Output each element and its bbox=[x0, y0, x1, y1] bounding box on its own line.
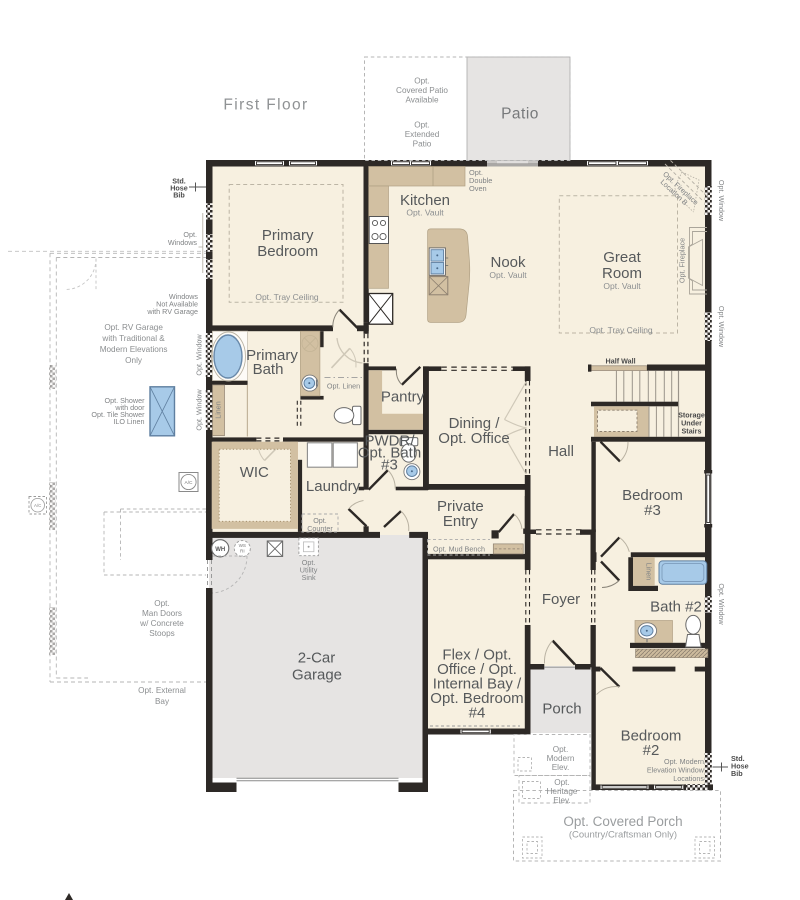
svg-text:Nook: Nook bbox=[490, 254, 526, 271]
svg-text:Primary: Primary bbox=[262, 227, 314, 244]
svg-text:Opt. Window: Opt. Window bbox=[717, 306, 726, 348]
svg-text:Bedroom: Bedroom bbox=[257, 243, 318, 260]
svg-text:Elev.: Elev. bbox=[552, 763, 570, 772]
svg-text:Patio: Patio bbox=[501, 106, 539, 123]
svg-text:(Country/Craftsman Only): (Country/Craftsman Only) bbox=[569, 830, 677, 841]
svg-text:A/C: A/C bbox=[34, 503, 41, 508]
svg-text:Opt. Window: Opt. Window bbox=[195, 389, 204, 431]
svg-text:Hall: Hall bbox=[548, 443, 574, 460]
svg-text:WIC: WIC bbox=[240, 464, 269, 481]
svg-text:#3: #3 bbox=[381, 457, 398, 474]
svg-text:A/C: A/C bbox=[185, 480, 194, 486]
svg-text:#2: #2 bbox=[643, 742, 660, 759]
svg-text:Opt. Window: Opt. Window bbox=[717, 583, 726, 625]
svg-text:Opt. Office: Opt. Office bbox=[438, 430, 509, 447]
svg-text:Opt. Vault: Opt. Vault bbox=[603, 281, 641, 291]
svg-text:Bath #2: Bath #2 bbox=[650, 599, 702, 616]
svg-text:Opt. Window: Opt. Window bbox=[195, 334, 204, 376]
svg-text:#3: #3 bbox=[644, 502, 661, 519]
svg-text:Only: Only bbox=[125, 356, 143, 365]
svg-text:Bath: Bath bbox=[253, 361, 284, 378]
svg-text:Covered Patio: Covered Patio bbox=[396, 86, 448, 95]
svg-text:Opt. Window: Opt. Window bbox=[717, 180, 726, 222]
svg-text:WH: WH bbox=[215, 547, 225, 553]
svg-text:with RV Garage: with RV Garage bbox=[146, 307, 198, 316]
svg-text:Opt. Tray Ceiling: Opt. Tray Ceiling bbox=[589, 325, 653, 335]
svg-text:Linen: Linen bbox=[645, 563, 654, 581]
svg-text:Entry: Entry bbox=[443, 513, 479, 530]
svg-text:Modern Elevations: Modern Elevations bbox=[100, 345, 168, 354]
svg-text:Oven: Oven bbox=[469, 184, 487, 193]
svg-text:Kitchen: Kitchen bbox=[400, 192, 450, 209]
svg-text:Opt. RV Garage: Opt. RV Garage bbox=[104, 323, 163, 332]
svg-text:Opt. External: Opt. External bbox=[138, 686, 186, 695]
svg-text:Heritage: Heritage bbox=[547, 787, 578, 796]
svg-text:Opt.: Opt. bbox=[553, 745, 568, 754]
svg-text:First Floor: First Floor bbox=[223, 97, 308, 114]
svg-text:Modern: Modern bbox=[547, 754, 575, 763]
svg-text:Porch: Porch bbox=[542, 701, 581, 718]
svg-text:Opt. Fireplace: Opt. Fireplace bbox=[678, 238, 687, 283]
svg-text:Stairs: Stairs bbox=[682, 427, 702, 436]
svg-text:Linen: Linen bbox=[214, 401, 223, 419]
svg-text:Room: Room bbox=[602, 265, 642, 282]
svg-text:Locations: Locations bbox=[673, 774, 704, 783]
svg-text:Opt. Tray Ceiling: Opt. Tray Ceiling bbox=[255, 292, 319, 302]
svg-text:Great: Great bbox=[603, 249, 641, 266]
svg-text:Windows: Windows bbox=[168, 238, 198, 247]
svg-text:Man Doors: Man Doors bbox=[142, 609, 182, 618]
svg-text:Opt. Linen: Opt. Linen bbox=[327, 382, 360, 391]
svg-text:ILO Linen: ILO Linen bbox=[113, 417, 144, 426]
svg-text:Garage: Garage bbox=[292, 667, 342, 684]
svg-text:Extended: Extended bbox=[405, 130, 440, 139]
svg-text:w/ Concrete: w/ Concrete bbox=[139, 619, 184, 628]
svg-text:Pantry: Pantry bbox=[381, 389, 425, 406]
svg-text:Stoops: Stoops bbox=[149, 629, 175, 638]
svg-text:Opt. Covered Porch: Opt. Covered Porch bbox=[563, 814, 682, 829]
svg-text:Available: Available bbox=[405, 96, 439, 105]
svg-text:Patio: Patio bbox=[413, 140, 432, 149]
svg-text:Counter: Counter bbox=[307, 524, 333, 533]
svg-text:Opt. Vault: Opt. Vault bbox=[489, 270, 527, 280]
svg-text:Opt.: Opt. bbox=[414, 77, 429, 86]
svg-text:Opt.: Opt. bbox=[414, 121, 429, 130]
svg-text:Bib: Bib bbox=[173, 191, 185, 200]
svg-text:Foyer: Foyer bbox=[542, 591, 580, 608]
svg-text:Sink: Sink bbox=[302, 573, 316, 582]
svg-text:2-Car: 2-Car bbox=[298, 650, 336, 667]
svg-text:Opt. Mud Bench: Opt. Mud Bench bbox=[433, 545, 485, 554]
svg-text:#4: #4 bbox=[469, 705, 486, 722]
svg-text:RI: RI bbox=[240, 548, 245, 553]
svg-text:with Traditional &: with Traditional & bbox=[101, 334, 165, 343]
svg-text:Opt.: Opt. bbox=[554, 778, 569, 787]
svg-text:Laundry: Laundry bbox=[306, 478, 361, 495]
svg-text:Bib: Bib bbox=[731, 769, 743, 778]
svg-text:Opt.: Opt. bbox=[154, 599, 169, 608]
svg-text:Opt. Vault: Opt. Vault bbox=[406, 208, 444, 218]
svg-text:Bay: Bay bbox=[155, 697, 170, 706]
svg-text:Elev.: Elev. bbox=[553, 796, 571, 805]
svg-text:Half Wall: Half Wall bbox=[606, 357, 636, 366]
